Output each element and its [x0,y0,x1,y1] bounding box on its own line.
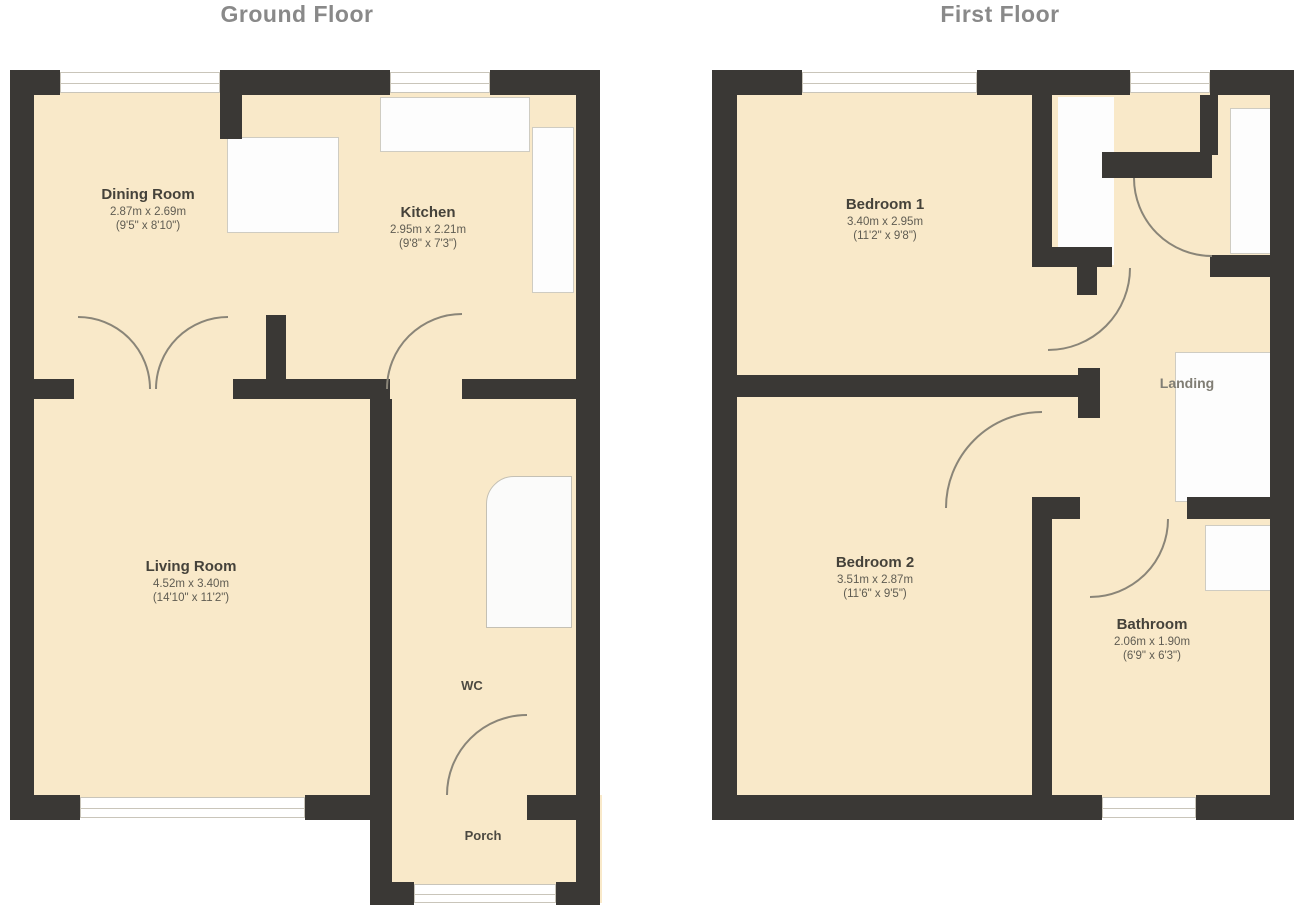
wall [1078,368,1100,418]
room-label-bedroom1: Bedroom 1 3.40m x 2.95m (11'2" x 9'8") [846,196,924,244]
room-label-landing: Landing [1160,375,1214,391]
room-label-kitchen: Kitchen 2.95m x 2.21m (9'8" x 7'3") [390,204,466,252]
wall [712,70,737,820]
window [60,72,220,93]
wall [1196,795,1294,820]
wall [370,399,392,797]
room-label-porch: Porch [465,828,502,843]
room-label-wc: WC [461,678,483,693]
wall [556,882,600,905]
wall [712,795,1102,820]
wall [1200,95,1218,155]
wall [370,882,414,905]
pantry-unit [227,137,339,233]
wall [10,379,74,399]
wall [737,375,1080,397]
window [802,72,977,93]
wall [1270,70,1294,820]
wall [10,70,34,820]
ground-floor-title: Ground Floor [221,1,374,28]
room-label-bathroom: Bathroom 2.06m x 1.90m (6'9" x 6'3") [1114,616,1190,664]
stair-void [1058,97,1114,265]
floorplan-page: Ground Floor First Floor [0,0,1312,905]
wall [1032,497,1080,519]
window [414,884,556,903]
wall [1032,497,1052,795]
wall [266,315,286,379]
kitchen-worktop [380,97,530,152]
wall [1077,267,1097,295]
wall [1102,152,1212,178]
first-floor-title: First Floor [940,1,1059,28]
wall [977,70,1130,95]
wall [1210,255,1294,277]
window [1130,72,1210,93]
window [80,797,305,818]
window [390,72,490,93]
wall [527,795,600,820]
window [1102,797,1196,818]
wall [1032,95,1052,267]
room-label-dining: Dining Room 2.87m x 2.69m (9'5" x 8'10") [101,186,194,234]
wall [233,379,390,399]
room-label-living: Living Room 4.52m x 3.40m (14'10" x 11'2… [146,558,237,606]
wall [1187,497,1294,519]
wall [712,70,802,95]
staircase [486,476,572,628]
wall [462,379,576,399]
wall [220,70,390,95]
wall [10,795,80,820]
wall [576,70,600,882]
shower [1205,525,1272,591]
kitchen-unit [532,127,574,293]
wall [1050,247,1112,267]
wall [10,70,60,95]
room-label-bedroom2: Bedroom 2 3.51m x 2.87m (11'6" x 9'5") [836,554,914,602]
wall [220,95,242,139]
